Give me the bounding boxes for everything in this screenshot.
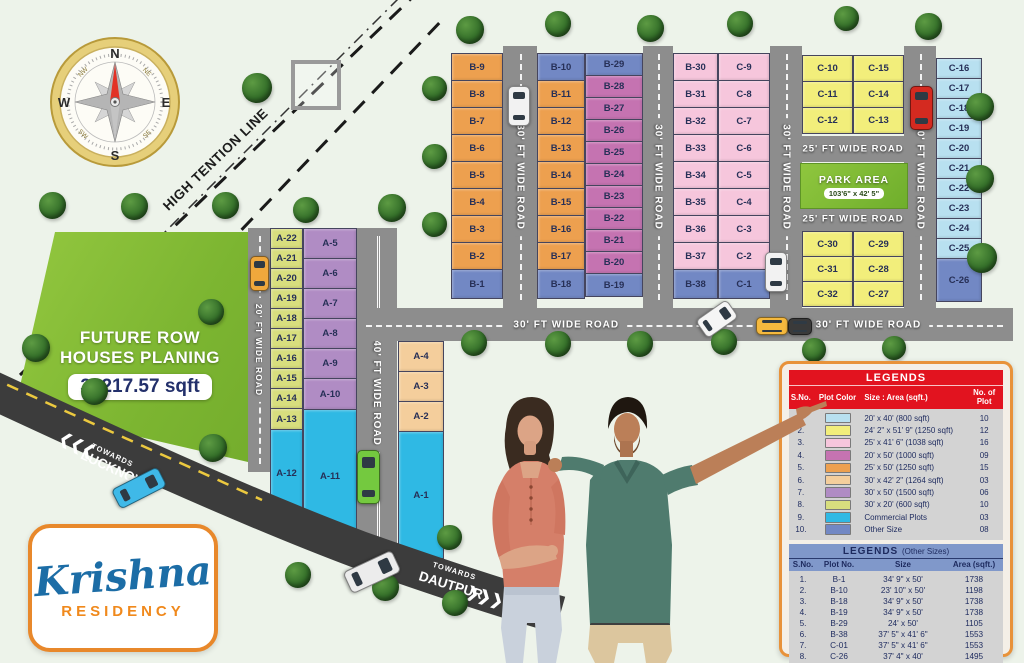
legend-row-size: 30' x 20' (600 sqft)	[862, 500, 965, 509]
legend-row-size: 25' x 50' (1250 sqft)	[862, 463, 965, 472]
tree-icon	[966, 165, 994, 193]
legend-row-count: 10	[965, 414, 1003, 423]
legend-other-size: 34' 9" x 50'	[861, 597, 945, 606]
legend-row-count: 09	[965, 451, 1003, 460]
tree-icon	[242, 73, 272, 103]
legend-row-count: 08	[965, 525, 1003, 534]
woman-figure	[492, 397, 565, 663]
legends-other-title-suffix: (Other Sizes)	[902, 547, 949, 556]
legends-other-title-main: LEGENDS	[843, 546, 898, 557]
legend-other-size: 37' 4" x 40'	[861, 652, 945, 661]
legend-row-count: 10	[965, 500, 1003, 509]
legends-other-header-size: Size	[861, 560, 945, 569]
tree-icon	[81, 378, 108, 405]
legend-row-size: 20' x 50' (1000 sqft)	[862, 451, 965, 460]
site-plan-canvas: HIGH TENTION LINE FUTURE ROW HOUSES PLAN…	[0, 0, 1024, 663]
project-logo: Krishna RESIDENCY	[28, 524, 218, 652]
legend-row-count: 06	[965, 488, 1003, 497]
legends-header-size: Size : Area (sqft.)	[862, 393, 965, 402]
tree-icon	[212, 192, 239, 219]
tree-icon	[834, 6, 859, 31]
legend-other-area: 1738	[945, 608, 1003, 617]
legend-other-size: 34' 9" x 50'	[861, 608, 945, 617]
tree-icon	[422, 212, 447, 237]
legend-other-area: 1198	[945, 586, 1003, 595]
legend-other-size: 24' x 50'	[861, 619, 945, 628]
tree-icon	[967, 243, 997, 273]
logo-subtitle: RESIDENCY	[61, 603, 185, 620]
tree-icon	[627, 331, 653, 357]
legend-row-size: 20' x 40' (800 sqft)	[862, 414, 965, 423]
tree-icon	[545, 11, 571, 37]
white-car-icon	[765, 252, 787, 292]
tree-icon	[22, 334, 50, 362]
legends-title: LEGENDS	[789, 370, 1003, 386]
legend-other-area: 1105	[945, 619, 1003, 628]
green-bus-icon	[357, 450, 380, 504]
tree-icon	[915, 13, 942, 40]
legend-row-count: 15	[965, 463, 1003, 472]
tree-icon	[456, 16, 484, 44]
tree-icon	[966, 93, 994, 121]
legend-row-count: 16	[965, 438, 1003, 447]
couple-photo	[450, 385, 840, 663]
tree-icon	[198, 299, 224, 325]
orange-truck-icon	[250, 256, 269, 291]
tree-icon	[461, 330, 487, 356]
tree-icon	[802, 338, 826, 362]
legend-row-size: 30' x 50' (1500 sqft)	[862, 488, 965, 497]
logo-name: Krishna	[33, 550, 213, 602]
legend-row-size: 24' 2" x 51' 9" (1250 sqft)	[862, 426, 965, 435]
tree-icon	[285, 562, 311, 588]
pointing-arm	[690, 413, 806, 484]
tree-icon	[882, 336, 906, 360]
legend-row-count: 12	[965, 426, 1003, 435]
white-car-icon	[508, 86, 530, 126]
tree-icon	[727, 11, 753, 37]
legend-other-size: 37' 5" x 41' 6"	[861, 641, 945, 650]
legend-row-size: Commercial Plots	[862, 513, 965, 522]
legend-other-area: 1553	[945, 641, 1003, 650]
legend-other-size: 37' 5" x 41' 6"	[861, 630, 945, 639]
legend-row-size: 30' x 42' 2" (1264 sqft)	[862, 476, 965, 485]
tree-icon	[422, 76, 447, 101]
tree-icon	[121, 193, 148, 220]
tree-icon	[378, 194, 406, 222]
tree-icon	[637, 15, 664, 42]
legend-row-count: 03	[965, 476, 1003, 485]
legend-other-area: 1495	[945, 652, 1003, 661]
tree-icon	[422, 144, 447, 169]
yellow-truck-icon	[756, 317, 788, 335]
legend-other-area: 1738	[945, 575, 1003, 584]
legend-row-count: 03	[965, 513, 1003, 522]
legends-header-count: No. of Plot	[965, 388, 1003, 406]
tree-icon	[39, 192, 66, 219]
man-figure	[548, 397, 827, 663]
tree-icon	[199, 434, 227, 462]
dark-truck-icon	[788, 318, 812, 335]
red-car-icon	[910, 86, 933, 130]
legend-other-area: 1738	[945, 597, 1003, 606]
legends-other-header-area: Area (sqft.)	[945, 560, 1003, 569]
legend-other-size: 23' 10" x 50'	[861, 586, 945, 595]
tree-icon	[293, 197, 319, 223]
legend-row-size: 25' x 41' 6" (1038 sqft)	[862, 438, 965, 447]
legend-other-size: 34' 9" x 50'	[861, 575, 945, 584]
legend-other-area: 1553	[945, 630, 1003, 639]
legend-row-size: Other Size	[862, 525, 965, 534]
pointing-hand	[796, 401, 827, 421]
tree-icon	[545, 331, 571, 357]
